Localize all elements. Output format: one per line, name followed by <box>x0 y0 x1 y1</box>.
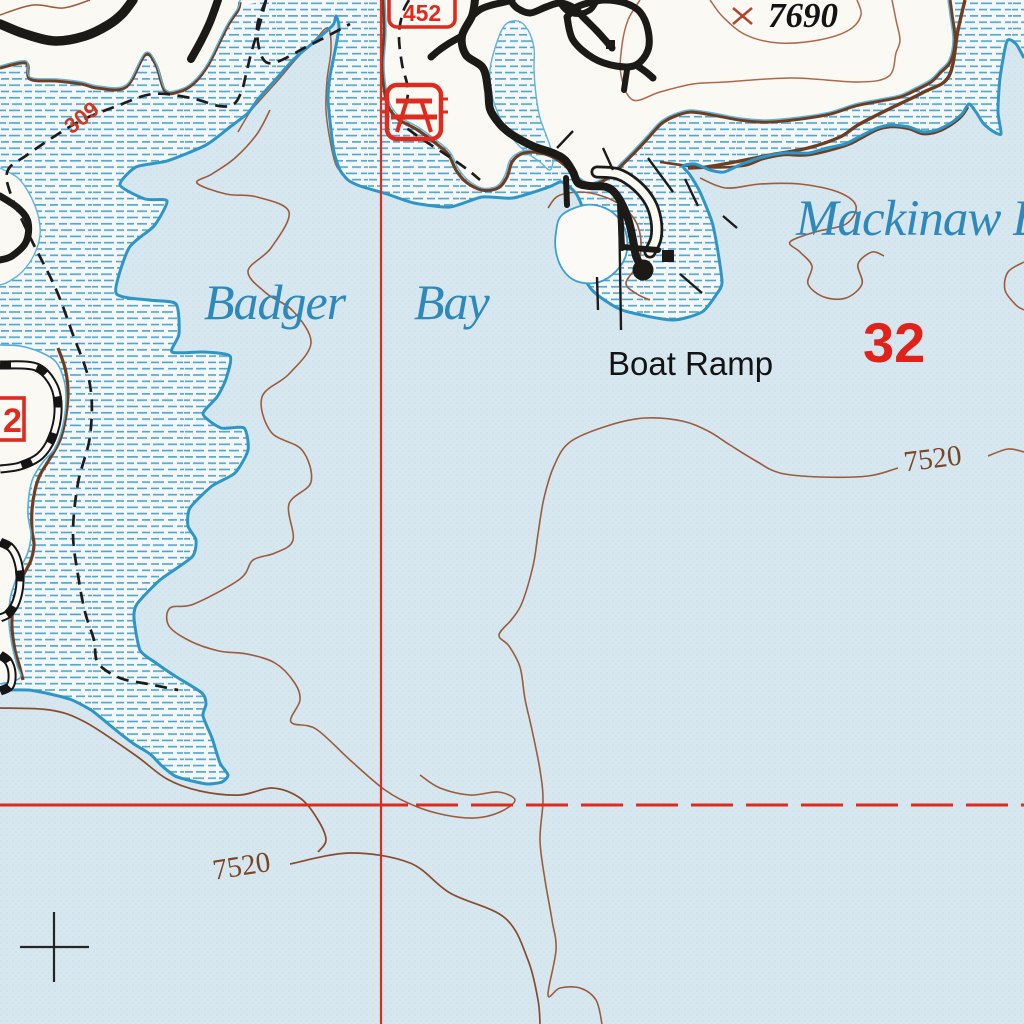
svg-text:Badger: Badger <box>204 274 347 330</box>
svg-text:Boat Ramp: Boat Ramp <box>608 345 773 382</box>
svg-text:32: 32 <box>863 311 925 374</box>
svg-text:7690: 7690 <box>768 0 838 35</box>
svg-text:Mackinaw B: Mackinaw B <box>795 191 1024 247</box>
svg-text:452: 452 <box>403 0 441 26</box>
svg-text:Bay: Bay <box>414 274 491 330</box>
svg-text:2: 2 <box>3 402 22 440</box>
